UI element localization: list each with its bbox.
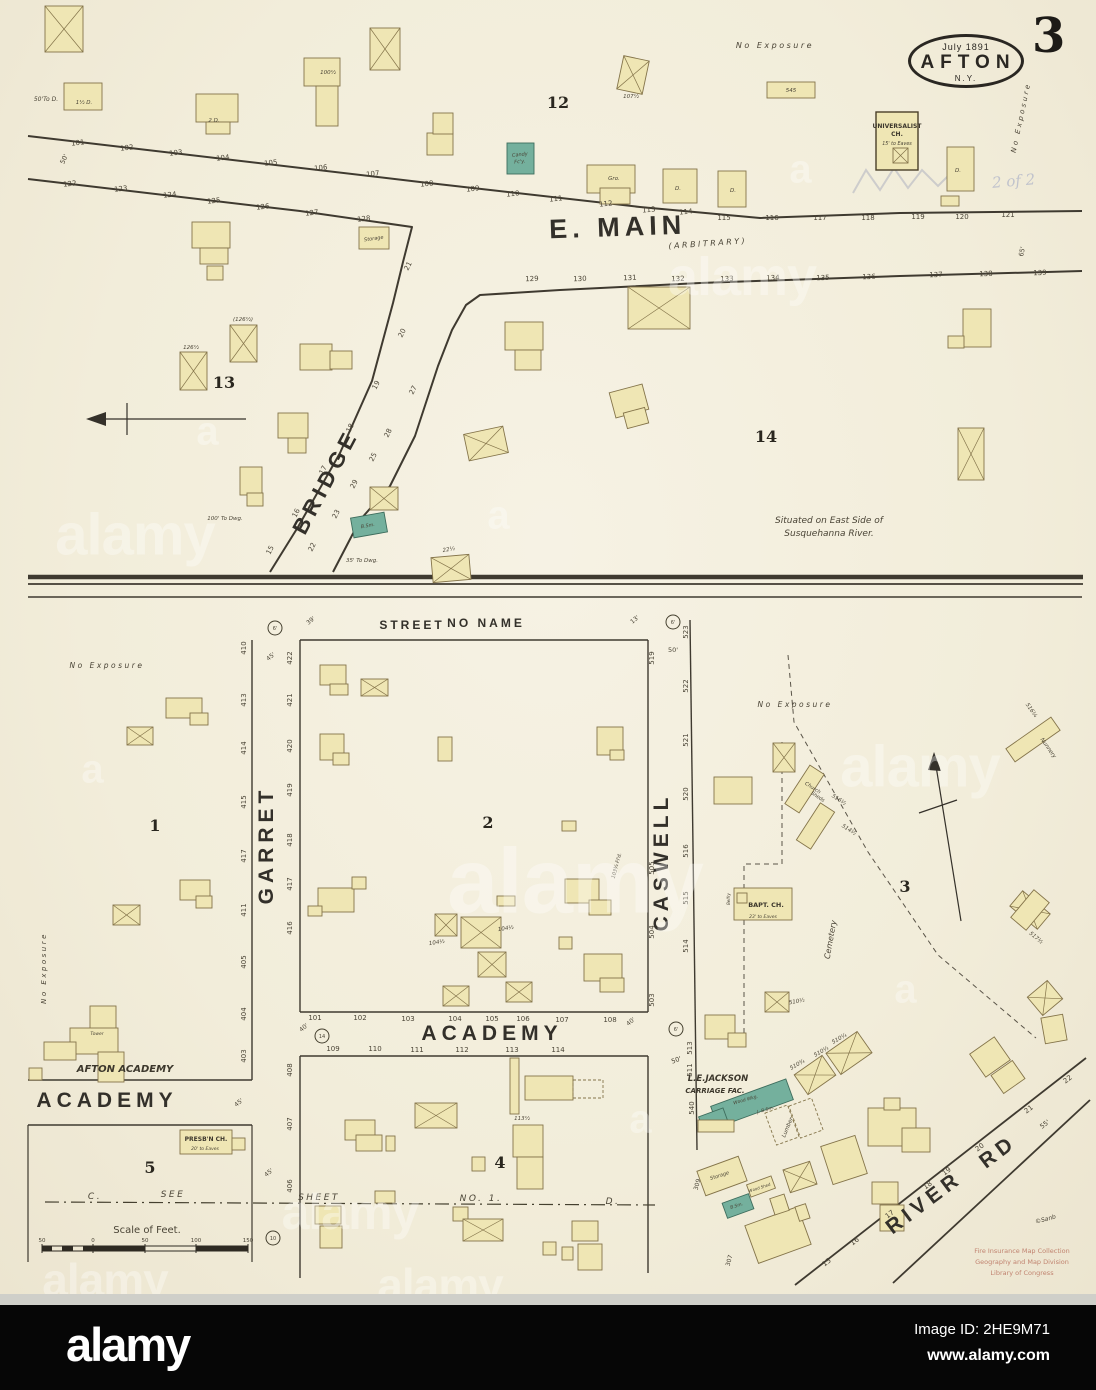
- building-footprint: [478, 952, 506, 977]
- building-rect: [316, 86, 338, 126]
- map-label: 131: [623, 274, 637, 282]
- map-label: Situated on East Side of: [775, 516, 885, 526]
- map-label: Fc'y.: [514, 158, 526, 165]
- map-label: 114: [551, 1046, 565, 1054]
- map-label: 111: [410, 1046, 423, 1054]
- map-label: 13: [213, 373, 235, 392]
- map-label: 406: [286, 1179, 294, 1193]
- building-rect: [247, 493, 263, 506]
- map-label: 118: [861, 214, 874, 222]
- map-label: (126½): [233, 316, 253, 323]
- building-rect: [517, 1157, 543, 1189]
- building-footprint: [438, 737, 452, 761]
- map-label: 107: [555, 1016, 568, 1024]
- map-label: 516: [682, 844, 690, 858]
- map-label: 65': [1017, 246, 1027, 258]
- map-label: 100½: [320, 69, 336, 76]
- building-footprint: [821, 1135, 868, 1184]
- building-rect: [543, 1242, 556, 1255]
- map-label: 414: [240, 741, 248, 755]
- map-label: 515: [682, 891, 690, 904]
- map-label: 29: [349, 478, 360, 490]
- map-label: 50': [668, 646, 678, 654]
- map-label: 540: [688, 1101, 696, 1114]
- building-footprint: [796, 803, 834, 849]
- building-footprint: [443, 986, 469, 1006]
- map-label: E. MAIN: [549, 210, 687, 245]
- building-footprint: [207, 266, 223, 280]
- map-label: L.E.JACKSON: [688, 1074, 748, 1084]
- building-footprint: [200, 248, 228, 264]
- map-label: 45': [265, 651, 277, 663]
- map-label: 102: [353, 1014, 366, 1022]
- map-label: 16: [849, 1235, 861, 1247]
- arrow-head: [928, 752, 941, 771]
- building-rect: [737, 893, 747, 903]
- building-footprint: [240, 467, 262, 495]
- building-rect: [375, 1191, 395, 1203]
- building-footprint: [300, 344, 332, 370]
- building-footprint: [884, 1098, 900, 1110]
- building-footprint: [958, 428, 984, 480]
- map-label: 416: [286, 921, 294, 935]
- map-label: 45': [233, 1097, 245, 1109]
- building-footprint: [584, 954, 622, 981]
- map-label: CARRIAGE FAC.: [685, 1087, 744, 1095]
- scale-tick-label: 150: [243, 1238, 254, 1244]
- map-label: 505: [648, 861, 656, 874]
- building-footprint: [1011, 890, 1049, 930]
- map-label: 107½: [623, 93, 639, 100]
- map-label: 21: [403, 260, 414, 272]
- building-footprint: [352, 877, 366, 889]
- building-rect: [562, 1247, 573, 1260]
- map-label: 133: [720, 275, 734, 283]
- map-label: 422: [286, 651, 294, 664]
- map-label: 126: [256, 202, 271, 211]
- map-label: 15: [265, 544, 276, 556]
- map-label: 104: [448, 1015, 462, 1023]
- building-footprint: [515, 350, 541, 370]
- building-rect: [333, 753, 349, 765]
- map-label: 418: [286, 833, 294, 846]
- map-label: 129: [525, 275, 539, 283]
- building-footprint: [517, 1157, 543, 1189]
- building-footprint: [247, 493, 263, 506]
- building-rect: [29, 1068, 42, 1080]
- map-label: 105: [485, 1015, 498, 1023]
- stock-photo-page: 6'6'6'1410Scale of Feet.50050100150No Ex…: [0, 0, 1096, 1390]
- building-rect: [728, 1033, 746, 1047]
- map-label: 15' to Eaves: [882, 141, 912, 147]
- map-label: AFTON ACADEMY: [76, 1064, 175, 1075]
- map-label: 407: [286, 1117, 294, 1130]
- map-label: 1½ D.: [76, 99, 93, 106]
- map-cartouche: July 1891 AFTON N.Y.: [908, 34, 1024, 88]
- map-label: 112: [455, 1046, 468, 1054]
- map-label: 110: [506, 189, 520, 198]
- map-label: 521: [682, 733, 690, 746]
- map-label: 139: [1033, 269, 1047, 277]
- building-rect: [562, 821, 576, 831]
- building-footprint: [893, 148, 908, 163]
- building-footprint: [386, 1136, 395, 1151]
- building-footprint: [1041, 1014, 1067, 1043]
- datum-circle-label: 6': [674, 1027, 679, 1033]
- sanborn-map-sheet: 6'6'6'1410Scale of Feet.50050100150No Ex…: [0, 0, 1096, 1294]
- map-label: UNIVERSALIST: [873, 123, 923, 130]
- map-canvas: 6'6'6'1410Scale of Feet.50050100150No Ex…: [0, 0, 1096, 1294]
- building-footprint: [562, 821, 576, 831]
- building-rect: [565, 879, 599, 903]
- map-label: 2 of 2: [990, 170, 1036, 192]
- building-footprint: [506, 982, 532, 1002]
- building-rect: [240, 467, 262, 495]
- map-label: NO NAME: [447, 616, 525, 630]
- alamy-url[interactable]: www.alamy.com: [914, 1347, 1050, 1365]
- map-label: 100' To Dwg.: [207, 516, 243, 522]
- map-label: BAPT. CH.: [748, 901, 784, 909]
- scale-bar-seg: [42, 1246, 52, 1251]
- scale-tick-label: 50: [142, 1238, 149, 1244]
- building-rect: [288, 438, 306, 453]
- building-footprint: [180, 352, 207, 390]
- map-label: 113: [642, 205, 656, 214]
- building-footprint: [765, 992, 789, 1012]
- map-label: 125: [207, 196, 221, 205]
- map-label: 2 D.: [208, 118, 219, 124]
- map-label: 110: [368, 1045, 381, 1053]
- map-label: 112: [599, 199, 613, 208]
- map-label: 124: [163, 190, 178, 199]
- building-footprint: [375, 1191, 395, 1203]
- map-label: 123: [114, 184, 128, 193]
- map-label: D.: [606, 1197, 621, 1207]
- building-rect: [196, 896, 212, 908]
- building-footprint: [415, 1103, 457, 1128]
- map-label: 516¼: [1024, 702, 1038, 719]
- building-footprint: [941, 196, 959, 206]
- map-label: 12: [547, 93, 569, 112]
- map-label: 106: [516, 1015, 530, 1023]
- map-label: 120: [955, 213, 968, 221]
- building-footprint: [589, 900, 611, 915]
- building-footprint: [948, 336, 964, 348]
- building-footprint: [600, 978, 624, 992]
- map-label: 121: [1001, 211, 1014, 219]
- building-footprint: [510, 1058, 519, 1114]
- map-label: 523: [682, 625, 690, 638]
- building-rect: [821, 1135, 868, 1184]
- map-label: 404: [240, 1007, 248, 1021]
- map-label: D.: [675, 186, 681, 192]
- map-label: 514: [682, 939, 690, 953]
- map-label: 13': [629, 614, 641, 626]
- building-footprint: [472, 1157, 485, 1171]
- building-footprint: [196, 896, 212, 908]
- building-footprint: [826, 1031, 872, 1074]
- building-footprint: [565, 879, 599, 903]
- building-footprint: [370, 487, 398, 510]
- building-footprint: [45, 6, 83, 52]
- map-label: 309: [693, 1178, 703, 1191]
- building-rect: [386, 1136, 395, 1151]
- map-label: 22: [307, 541, 318, 553]
- building-footprint: [714, 777, 752, 804]
- building-footprint: [461, 917, 501, 948]
- building-footprint: [572, 1221, 598, 1241]
- map-label: 410: [240, 641, 248, 654]
- arrow-tick: [919, 800, 957, 813]
- map-label: 27: [408, 384, 419, 396]
- building-rect: [525, 1076, 573, 1100]
- map-label: Sheds: [810, 791, 826, 805]
- page-edge-strip: [0, 1294, 1096, 1305]
- map-label: 420: [286, 739, 294, 752]
- cartouche-date: July 1891: [911, 42, 1021, 52]
- map-label: 20: [397, 327, 408, 339]
- scale-bar-seg: [196, 1246, 248, 1251]
- map-label: 50': [58, 153, 70, 166]
- map-label: Susquehanna River.: [784, 529, 873, 539]
- building-footprint: [543, 1242, 556, 1255]
- map-label: PRESB'N CH.: [185, 1136, 228, 1143]
- map-label: 522: [682, 679, 690, 692]
- map-label: Cemetery: [823, 919, 839, 960]
- map-label: 517½: [1028, 930, 1045, 946]
- building-rect: [505, 322, 543, 350]
- map-label: 3: [899, 877, 910, 896]
- map-label: 417: [240, 849, 248, 862]
- building-footprint: [617, 56, 650, 95]
- map-label: 411: [240, 903, 248, 916]
- map-label: 109: [326, 1045, 339, 1053]
- map-label: 104: [216, 153, 231, 162]
- map-label: 126½: [183, 344, 199, 351]
- building-footprint: [29, 1068, 42, 1080]
- building-rect: [559, 937, 572, 949]
- map-label: 111: [549, 194, 563, 203]
- map-label: 113½: [514, 1115, 530, 1122]
- map-label: 405: [240, 955, 248, 968]
- building-rect: [789, 1098, 823, 1138]
- handwriting-squiggle: [853, 168, 952, 193]
- building-rect: [433, 113, 453, 134]
- map-label: 134: [766, 274, 780, 282]
- scale-label: Scale of Feet.: [113, 1225, 181, 1236]
- map-label: 55': [1038, 1118, 1051, 1131]
- building-rect: [300, 344, 332, 370]
- map-label: 107: [366, 169, 380, 178]
- boundary-dashed: [45, 1202, 655, 1205]
- map-label: D.: [730, 188, 736, 194]
- map-label: 135: [816, 274, 830, 282]
- building-rect: [589, 900, 611, 915]
- scale-bar-seg: [83, 1246, 93, 1251]
- building-footprint: [192, 222, 230, 248]
- map-label: Lumber: [781, 1116, 795, 1138]
- map-label: 132: [671, 275, 685, 283]
- map-label: 23' to Eaves: [749, 914, 777, 920]
- map-label: 117: [813, 214, 826, 222]
- building-footprint: [497, 896, 515, 906]
- alamy-logo[interactable]: alamy: [66, 1317, 189, 1372]
- map-label: 130: [573, 275, 587, 283]
- map-label: 545: [786, 88, 797, 94]
- map-label: No Exposure: [1010, 82, 1033, 154]
- building-footprint: [559, 937, 572, 949]
- building-rect: [315, 1206, 341, 1224]
- building-footprint: [333, 753, 349, 765]
- building-footprint: [370, 28, 400, 70]
- building-rect: [1011, 890, 1049, 930]
- building-rect: [572, 1221, 598, 1241]
- building-rect: [308, 906, 322, 916]
- building-footprint: [308, 906, 322, 916]
- map-label: STREET: [379, 618, 444, 632]
- building-footprint: [330, 684, 348, 695]
- building-rect: [515, 350, 541, 370]
- map-label: ACADEMY: [421, 1022, 562, 1045]
- cartouche-city: AFTON: [915, 52, 1021, 74]
- building-rect: [207, 266, 223, 280]
- datum-circle-label: 6': [671, 620, 676, 626]
- building-footprint: [232, 1138, 245, 1150]
- scale-bar-seg: [62, 1246, 73, 1251]
- map-label: 20' to Eaves: [191, 1146, 219, 1152]
- map-label: 103¾ Fl'd.: [611, 852, 624, 879]
- building-rect: [872, 1182, 898, 1204]
- map-label: 421: [286, 693, 294, 706]
- map-label: 1: [149, 816, 160, 835]
- datum-circle-label: 10: [270, 1236, 276, 1242]
- building-footprint: [789, 1098, 823, 1138]
- building-rect: [941, 196, 959, 206]
- building-footprint: [230, 325, 257, 362]
- map-label: 45': [263, 1167, 275, 1179]
- map-label: 114: [679, 207, 694, 216]
- map-label: 115: [717, 214, 730, 222]
- building-rect: [513, 1125, 543, 1157]
- scale-tick-label: 100: [191, 1238, 202, 1244]
- map-label: 122: [63, 179, 77, 188]
- map-label: 108: [420, 179, 434, 188]
- image-id: Image ID: 2HE9M71: [914, 1321, 1050, 1338]
- building-rect: [600, 978, 624, 992]
- building-rect: [192, 222, 230, 248]
- street-line: [28, 136, 1082, 218]
- alamy-footer-bar: alamy Image ID: 2HE9M71 www.alamy.com: [0, 1305, 1096, 1390]
- map-label: 101: [71, 138, 85, 147]
- map-label: 106: [314, 163, 329, 172]
- building-rect: [796, 803, 834, 849]
- building-rect: [232, 1138, 245, 1150]
- building-footprint: [505, 322, 543, 350]
- map-label: 101: [308, 1014, 321, 1022]
- map-label: No Exposure: [736, 41, 814, 50]
- map-label: GARRET: [255, 786, 278, 905]
- building-footprint: [288, 438, 306, 453]
- map-label: 40': [298, 1022, 310, 1034]
- building-footprint: [573, 1080, 603, 1098]
- map-label: 516½: [830, 792, 848, 807]
- datum-circle-label: 6': [273, 626, 278, 632]
- building-footprint: [463, 1219, 503, 1241]
- map-label: No Exposure: [70, 661, 145, 670]
- map-label: 520: [682, 787, 690, 800]
- map-label: 408: [286, 1063, 294, 1076]
- map-label: 28: [383, 427, 394, 439]
- building-footprint: [737, 893, 747, 903]
- building-footprint: [513, 1125, 543, 1157]
- building-rect: [698, 1120, 734, 1132]
- map-label: Fire Insurance Map Collection: [974, 1247, 1070, 1255]
- building-footprint: [113, 905, 140, 925]
- building-rect: [497, 896, 515, 906]
- building-footprint: [578, 1244, 602, 1270]
- map-label: 510½: [788, 997, 805, 1007]
- building-footprint: [610, 750, 624, 760]
- map-label: D.: [955, 168, 961, 174]
- building-rect: [318, 888, 354, 912]
- building-footprint: [435, 914, 457, 936]
- building-footprint: [433, 113, 453, 134]
- arrow-head: [86, 412, 106, 426]
- map-label: 25: [368, 451, 379, 463]
- map-label: RD: [975, 1130, 1021, 1173]
- map-label: 5: [144, 1158, 155, 1177]
- datum-circle-label: 14: [319, 1034, 325, 1040]
- building-footprint: [698, 1120, 734, 1132]
- map-label: 102: [120, 143, 134, 152]
- map-label: 35' To Dwg.: [346, 558, 378, 564]
- map-label: 50'To D.: [34, 96, 58, 103]
- building-rect: [427, 133, 453, 155]
- building-footprint: [315, 1206, 341, 1224]
- building-footprint: [562, 1247, 573, 1260]
- map-label: 14: [755, 427, 777, 446]
- arrow-shaft: [936, 766, 961, 921]
- building-rect: [578, 1244, 602, 1270]
- building-rect: [330, 684, 348, 695]
- map-label: SEE: [161, 1190, 186, 1200]
- map-label: Nunnery: [1039, 737, 1058, 760]
- map-label: C.: [88, 1192, 102, 1202]
- building-rect: [278, 413, 308, 438]
- map-label: 116: [765, 214, 779, 222]
- building-footprint: [431, 554, 471, 582]
- building-rect: [573, 1080, 603, 1098]
- map-label: Gro.: [608, 176, 620, 182]
- building-footprint: [127, 727, 153, 745]
- map-label: 137: [929, 271, 943, 279]
- building-rect: [948, 336, 964, 348]
- building-rect: [472, 1157, 485, 1171]
- scale-bar-seg: [93, 1246, 145, 1251]
- building-footprint: [464, 426, 509, 461]
- building-rect: [320, 1226, 342, 1248]
- building-rect: [320, 665, 346, 685]
- map-label: 22½: [442, 545, 456, 554]
- map-label: 419: [286, 783, 294, 796]
- building-footprint: [628, 287, 690, 329]
- map-label: 39': [305, 615, 317, 627]
- map-label: 503: [648, 993, 656, 1006]
- map-label: 23: [331, 508, 342, 520]
- map-label: ©Sanb: [1035, 1213, 1057, 1225]
- map-label: 104½: [428, 938, 445, 947]
- building-rect: [714, 777, 752, 804]
